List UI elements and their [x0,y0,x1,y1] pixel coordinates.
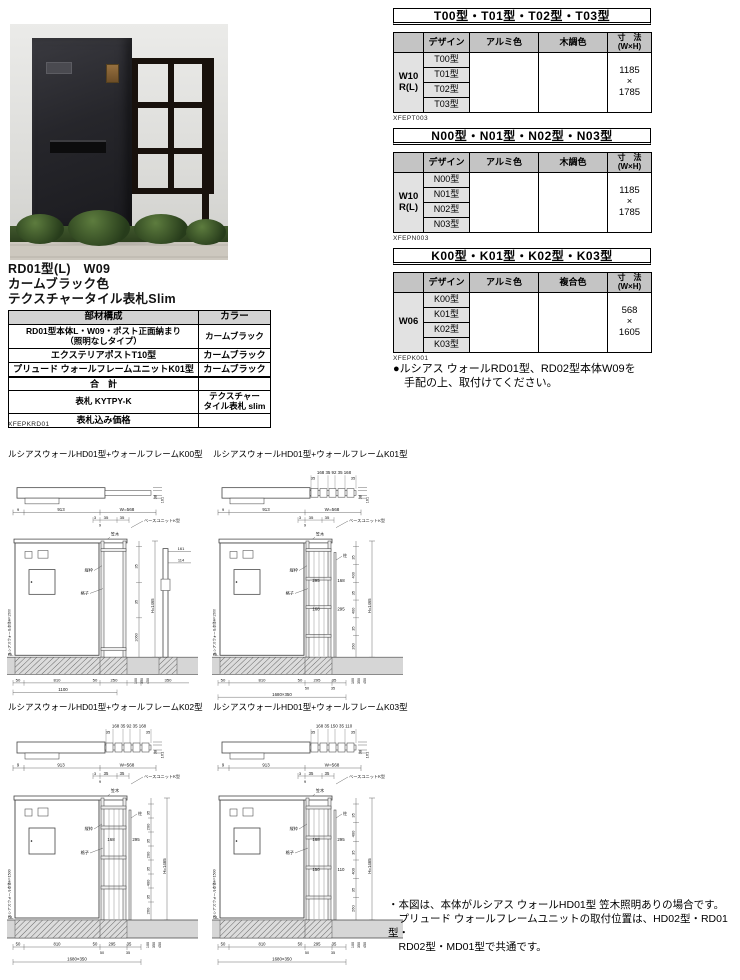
dot [236,840,238,842]
col-header-blank [394,273,424,293]
dimension-label: 格子 [81,849,89,856]
dimension-label: ルシアスウォール本体H=1500 [6,609,11,655]
frame-horizontal-bar [138,102,208,108]
intercom [38,808,48,816]
dimension-label: 350 [140,678,144,684]
dimension-label: ベースユニットK型 [144,773,180,779]
pillar [129,810,131,920]
dimension-label: 35 [104,771,109,776]
foundation [220,657,306,674]
mail-slot [50,140,106,153]
dimension-label: 161 [178,546,185,551]
dimension-label: W=568 [325,507,340,512]
dimension-label: 35 [309,515,314,520]
plan-wall [222,742,310,753]
dimension-label: GL [213,652,219,657]
frame-horizontal-bar [138,148,208,154]
series-stub: W10 R(L) [394,173,424,233]
dimension-label: 1680×350 [67,957,87,962]
series-stub: W06 [394,293,424,353]
dimension-label: 400 [351,830,356,837]
drawing-title-k01: ルシアスウォールHD01型+ウォールフレームK01型 [213,448,408,460]
plan-wall [17,488,105,498]
dimension-label: 35 [350,591,355,595]
dimension-label: 35 [146,894,151,899]
plant [186,219,226,245]
wall-frame-unit [132,58,214,194]
design-cell: K03型 [424,338,470,353]
col-header-size: 寸 法 (W×H) [608,153,652,173]
col-header-size: 寸 法 (W×H) [608,33,652,53]
dimension-label: 35 [351,850,356,855]
frame-rail [101,648,126,651]
dimension-label: 114 [178,558,185,563]
dimension-label: 810 [54,942,62,947]
foundation [305,920,332,938]
plan-slat [311,743,318,752]
dimension-label: 35 [309,771,314,776]
dimension-label: 450 [363,678,367,684]
foundation [100,920,127,938]
dimension-label: 笠木 [316,530,324,536]
plan-slat [329,743,336,752]
dimension-label: 柱 [343,552,347,558]
series-title-k: K00型・K01型・K02型・K03型 [393,248,651,265]
dimension-label: 168 [312,837,320,842]
intercom [243,551,253,559]
dimension-label: 縦枠 [85,825,94,832]
dimension-label: 50 [298,942,303,947]
plan-slat [106,743,113,752]
dimension-label: 250 [110,678,118,683]
dimension-label: 9 [222,507,225,512]
dimension-label: 168 35 92 35 168 [317,470,352,475]
dimension-label: H=1465 [367,858,372,874]
frame-post [328,798,331,920]
alumi-color-cell [470,53,539,113]
dimension-label: 50 [93,942,98,947]
plan-footing [230,498,264,504]
col-header-blank [394,33,424,53]
dimension-label: 168 [337,578,345,583]
col-header-alumi: アルミ色 [470,33,539,53]
dimension-label: 35 [351,812,356,817]
design-cell: T02型 [424,83,470,98]
design-cell: T00型 [424,53,470,68]
dimension-label: 913 [57,762,65,767]
series-stub: W10 R(L) [394,53,424,113]
order-note-line: 手配の上、取付けてください。 [393,376,738,390]
plan-footing [25,498,59,504]
col-header-alumi: アルミ色 [470,153,539,173]
part-color: テクスチャー タイル表札 slim [199,391,271,414]
col-header-blank [394,153,424,173]
dimension-label: 35 [311,730,316,735]
bottom-note: ・本図は、本体がルシアス ウォールHD01型 笠木照明ありの場合です。 プリュー… [388,898,738,954]
kasagi-cap [219,539,332,543]
table-code: XFEPN003 [393,235,429,242]
dimension-label: 9 [222,762,225,767]
plan-wall [17,742,105,753]
dimension-label: 50 [221,678,226,683]
drawing-line [336,777,348,784]
drawing-line [336,521,348,528]
frame-post [306,541,309,657]
design-cell: K02型 [424,323,470,338]
plan-wall [222,488,310,498]
frame-post [328,541,331,657]
dimension-label: 35 [146,810,151,815]
col-header-parts: 部材構成 [9,311,199,325]
dimension-label: 295 [132,837,140,842]
plan-slat [320,743,327,752]
design-cell: K00型 [424,293,470,308]
dimension-label: 35 [120,515,125,520]
part-name: エクステリアポストT10型 [9,349,199,363]
post-section [163,549,168,658]
plan-slat [338,743,345,752]
dimension-label: 350 [164,678,172,683]
dimension-label: 柱 [138,810,143,817]
size-cell: 1185 × 1785 [608,173,652,233]
dimension-label: 100 [351,678,355,684]
price-row-value [199,413,271,427]
product-model: RD01型(L) W09 [8,262,176,277]
nameplate [234,570,260,595]
technical-drawing-k00: 381619913W=568335359ベースユニットK型笠木ルシアスウォール本… [5,461,200,701]
dimension-label: 50 [16,678,21,683]
dimension-label: H=1465 [150,598,155,613]
product-heading: RD01型(L) W09 カームブラック色 テクスチャータイル表札Slim [8,262,176,307]
technical-drawing-k03: 168 35 150 35 1103535381619913W=56833535… [210,714,405,966]
dimension-label: ルシアスウォール本体H=1500 [7,869,12,918]
intercom [106,64,119,83]
size-cell: 1185 × 1785 [608,53,652,113]
dimension-label: 50 [298,678,303,683]
frame-rail [306,634,331,637]
plan-footing [25,753,59,759]
dimension-label: 35 [351,887,356,892]
dimension-label: 35 [351,476,355,481]
dimension-label: 格子 [81,589,89,595]
dimension-label: 295 [312,578,320,583]
dimension-label: 50 [16,942,21,947]
total-row-value [199,377,271,391]
dimension-label: H=1465 [367,598,372,613]
dimension-label: 450 [158,942,162,948]
plant [134,214,188,244]
dimension-label: 450 [363,942,367,948]
col-header-composite: 複合色 [539,273,608,293]
frame-rail [306,549,331,552]
dimension-label: 38 [152,495,157,499]
drawing-title-k02: ルシアスウォールHD01型+ウォールフレームK02型 [8,701,203,713]
plan-slat [347,743,354,752]
dimension-label: 3 [299,515,301,520]
plan-slat [329,489,336,498]
dimension-label: 168 35 92 35 168 [112,724,147,729]
frame-post [101,541,104,657]
dimension-label: ルシアスウォール本体H=1500 [211,609,216,655]
pillar [334,810,336,920]
dimension-label: 161 [364,497,369,503]
foundation [15,657,101,674]
frame-rail [101,826,126,829]
part-color: カームブラック [199,325,271,349]
dimension-label: 350 [357,678,361,684]
dimension-label: 35 [311,476,315,481]
nameplate [234,828,260,854]
design-cell: T01型 [424,68,470,83]
dimension-label: 35 [133,600,138,604]
dimension-label: W=568 [120,762,135,767]
dimension-label: 295 [337,607,345,612]
dimension-label: 260 [146,907,151,914]
dimension-label: 縦枠 [85,567,93,573]
series-table-k: デザイン アルミ色 複合色 寸 法 (W×H) W06 K00型 568 × 1… [393,272,652,353]
technical-drawing-k01: 168 35 92 35 1683535381619913W=568335359… [210,461,405,701]
frame-rail [101,856,126,859]
dimension-label: 200 [146,823,151,830]
col-header-design: デザイン [424,153,470,173]
nameplate [29,570,55,595]
dimension-label: 9 [17,507,20,512]
kasagi-cap [14,539,127,543]
dimension-label: GL [213,915,219,920]
wood-color-cell [539,173,608,233]
drawing-line [131,521,143,528]
dimension-label: 35 [146,838,151,843]
dimension-label: 913 [262,507,270,512]
product-nameplate-type: テクスチャータイル表札Slim [8,292,176,307]
dimension-label: 810 [53,678,61,683]
plan-slat [133,743,140,752]
part-color: カームブラック [199,363,271,377]
dimension-label: 9 [99,523,101,528]
dimension-label: 笠木 [111,787,120,794]
dimension-label: 1100 [58,687,68,692]
foundation [220,920,306,938]
plan-slat [115,743,122,752]
foundation [15,920,101,938]
plan-footing [230,753,264,759]
drawing-title-k00: ルシアスウォールHD01型+ウォールフレームK00型 [8,448,203,460]
dot [236,581,238,583]
dimension-label: 35 [350,627,355,631]
alumi-color-cell [470,293,539,353]
dot [31,840,33,842]
dimension-label: 350 [152,942,156,948]
dimension-label: 3 [299,771,302,776]
total-row-label: 合 計 [9,377,199,391]
nameplate [29,828,55,854]
dimension-label: 笠木 [111,530,119,536]
dimension-label: 50 [305,687,309,691]
table-code: XFEPKRD01 [8,421,50,428]
drawing-line [336,556,342,560]
plant [68,210,130,246]
design-cell: N03型 [424,218,470,233]
dimension-label: ベースユニットK型 [144,517,180,523]
plan-slat [124,743,131,752]
dimension-label: 400 [350,571,355,578]
col-header-alumi: アルミ色 [470,273,539,293]
dimension-label: 450 [146,678,150,684]
bottom-note-line: プリュード ウォールフレームユニットの取付位置は、HD02型・RD01型・ [388,912,738,940]
part-color: カームブラック [199,349,271,363]
frame-post [306,798,309,920]
dimension-label: 9 [99,779,102,784]
dimension-label: 260 [351,905,356,912]
dimension-label: 35 [351,730,356,735]
frame-rail [101,806,126,809]
design-cell: K01型 [424,308,470,323]
dimension-label: 810 [259,942,267,947]
dimension-label: 柱 [343,810,348,817]
dimension-label: 110 [338,867,346,872]
dimension-label: 35 [126,951,130,955]
dimension-label: 35 [120,771,125,776]
design-cell: T03型 [424,98,470,113]
col-header-wood: 木調色 [539,33,608,53]
dimension-label: 38 [358,749,363,754]
dimension-label: ベースユニットK型 [349,773,385,779]
dimension-label: 400 [351,867,356,874]
dimension-label: 35 [133,564,138,568]
technical-drawing-k02: 168 35 92 35 1683535381619913W=568335359… [5,714,200,966]
wall-body [15,543,99,655]
dimension-label: 168 [312,607,320,612]
frame-rail [306,896,331,899]
dimension-label: 168 [107,837,115,842]
design-cell: N02型 [424,203,470,218]
design-cell: N01型 [424,188,470,203]
dimension-label: 38 [153,749,158,754]
col-header-design: デザイン [424,33,470,53]
dimension-label: 350 [357,942,361,948]
dimension-label: 913 [262,762,270,767]
dimension-label: 1680×350 [272,692,292,697]
frame-rail [101,886,126,889]
dimension-label: 35 [127,942,132,947]
product-photo [10,24,228,260]
drawing-line [131,814,137,818]
dimension-label: 161 [160,751,165,758]
table-code: XFEPK001 [393,355,428,362]
intercom [38,551,48,559]
nameplate [46,62,72,74]
dimension-label: 9 [304,523,306,528]
foundation [305,657,332,674]
dimension-label: 168 35 150 35 110 [316,724,353,729]
dimension-label: 9 [17,762,20,767]
dimension-label: 格子 [286,589,294,595]
dimension-label: 35 [146,866,151,871]
dimension-label: 1680×350 [272,957,292,962]
plan-frame-arm [105,491,151,496]
plan-slat [142,743,149,752]
foundation [100,657,127,674]
col-header-wood: 木調色 [539,153,608,173]
series-table-t: デザイン アルミ色 木調色 寸 法 (W×H) W10 R(L) T00型 11… [393,32,652,113]
dimension-label: 161 [365,751,370,758]
dimension-label: 9 [304,779,307,784]
dimension-label: 400 [146,879,151,886]
kasagi-cap [14,796,127,800]
dimension-label: ルシアスウォール本体H=1500 [212,869,217,918]
dimension-label: 295 [313,678,321,683]
frame-vertical-bar [168,64,174,188]
drawing-title-k03: ルシアスウォールHD01型+ウォールフレームK03型 [213,701,408,713]
col-header-color: カラー [199,311,271,325]
dot [31,581,33,583]
plant [16,214,64,244]
series-title-t: T00型・T01型・T02型・T03型 [393,8,651,25]
plan-slat [347,489,354,498]
dimension-label: 格子 [286,849,294,856]
dimension-label: 810 [258,678,266,683]
pillar [334,552,336,657]
dimension-label: 縦枠 [290,825,299,832]
intercom [25,809,32,816]
dimension-label: 3 [94,771,97,776]
dimension-label: 笠木 [316,787,325,794]
product-color: カームブラック色 [8,277,176,292]
wall-body [220,543,304,655]
catalog-page: RD01型(L) W09 カームブラック色 テクスチャータイル表札Slim 部材… [0,0,740,980]
intercom [25,551,32,558]
dimension-label: 50 [93,678,98,683]
plan-slat [320,489,327,498]
dimension-label: 35 [332,942,337,947]
alumi-color-cell [470,173,539,233]
dimension-label: 35 [106,730,111,735]
dimension-label: 150 [312,867,320,872]
dimension-label: 縦枠 [290,567,298,573]
dimension-label: 295 [314,942,322,947]
plan-slat [311,489,318,498]
dimension-label: 35 [331,687,335,691]
post-box [161,579,170,590]
order-note: ●ルシアス ウォールRD01型、RD02型本体W09を 手配の上、取付けてくださ… [393,362,738,390]
dimension-label: 50 [221,942,226,947]
dimension-label: 35 [325,515,330,520]
dimension-label: 913 [57,507,65,512]
dimension-label: GL [8,652,14,657]
dimension-label: 35 [350,555,355,559]
wood-color-cell [539,53,608,113]
dimension-label: 260 [350,642,355,649]
dimension-label: 35 [146,730,151,735]
dimension-label: 35 [331,951,335,955]
bottom-note-line: RD02型・MD01型で共通です。 [388,940,738,954]
frame-post [123,541,126,657]
dimension-label: GL [8,915,14,920]
dimension-label: 50 [305,951,309,955]
parts-spec-table: 部材構成 カラー RD01型本体L・W09・ポスト正面納まり （照明なしタイプ）… [8,310,271,428]
part-name: 表札 KYTPY-K [9,391,199,414]
bottom-note-line: ・本図は、本体がルシアス ウォールHD01型 笠木照明ありの場合です。 [388,898,738,912]
design-cell: N00型 [424,173,470,188]
dimension-label: 3 [94,515,96,520]
dimension-label: 35 [332,678,337,683]
foundation [159,657,177,674]
dimension-label: 35 [104,515,109,520]
wall-body [220,800,304,918]
drawing-line [131,777,143,784]
col-header-size: 寸 法 (W×H) [608,273,652,293]
dimension-label: 100 [134,678,138,684]
